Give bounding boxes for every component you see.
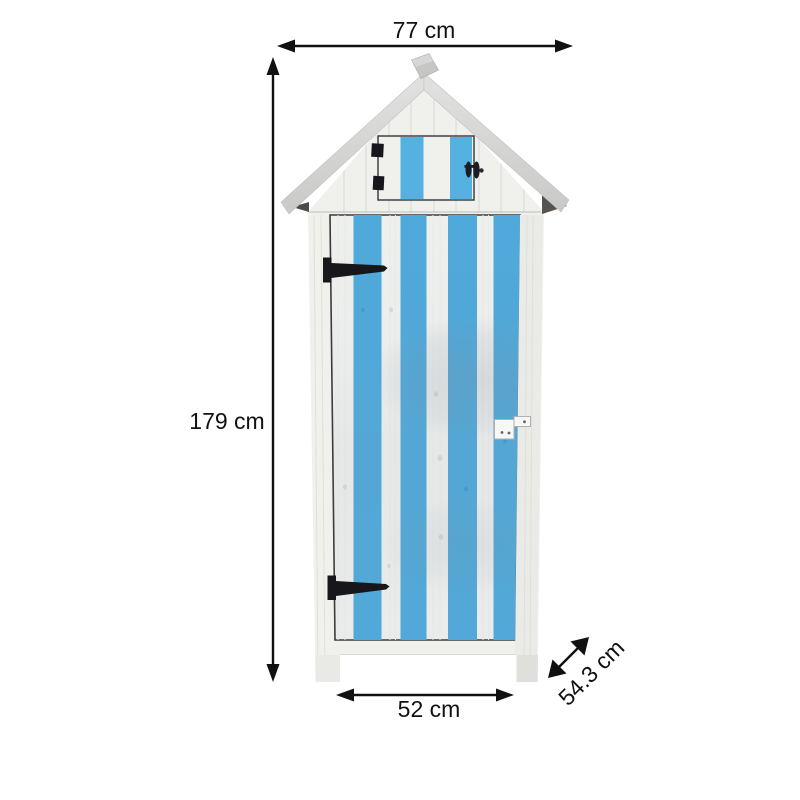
svg-text:77 cm: 77 cm [393, 17, 456, 43]
svg-text:52 cm: 52 cm [398, 696, 461, 722]
svg-text:179 cm: 179 cm [189, 408, 264, 434]
